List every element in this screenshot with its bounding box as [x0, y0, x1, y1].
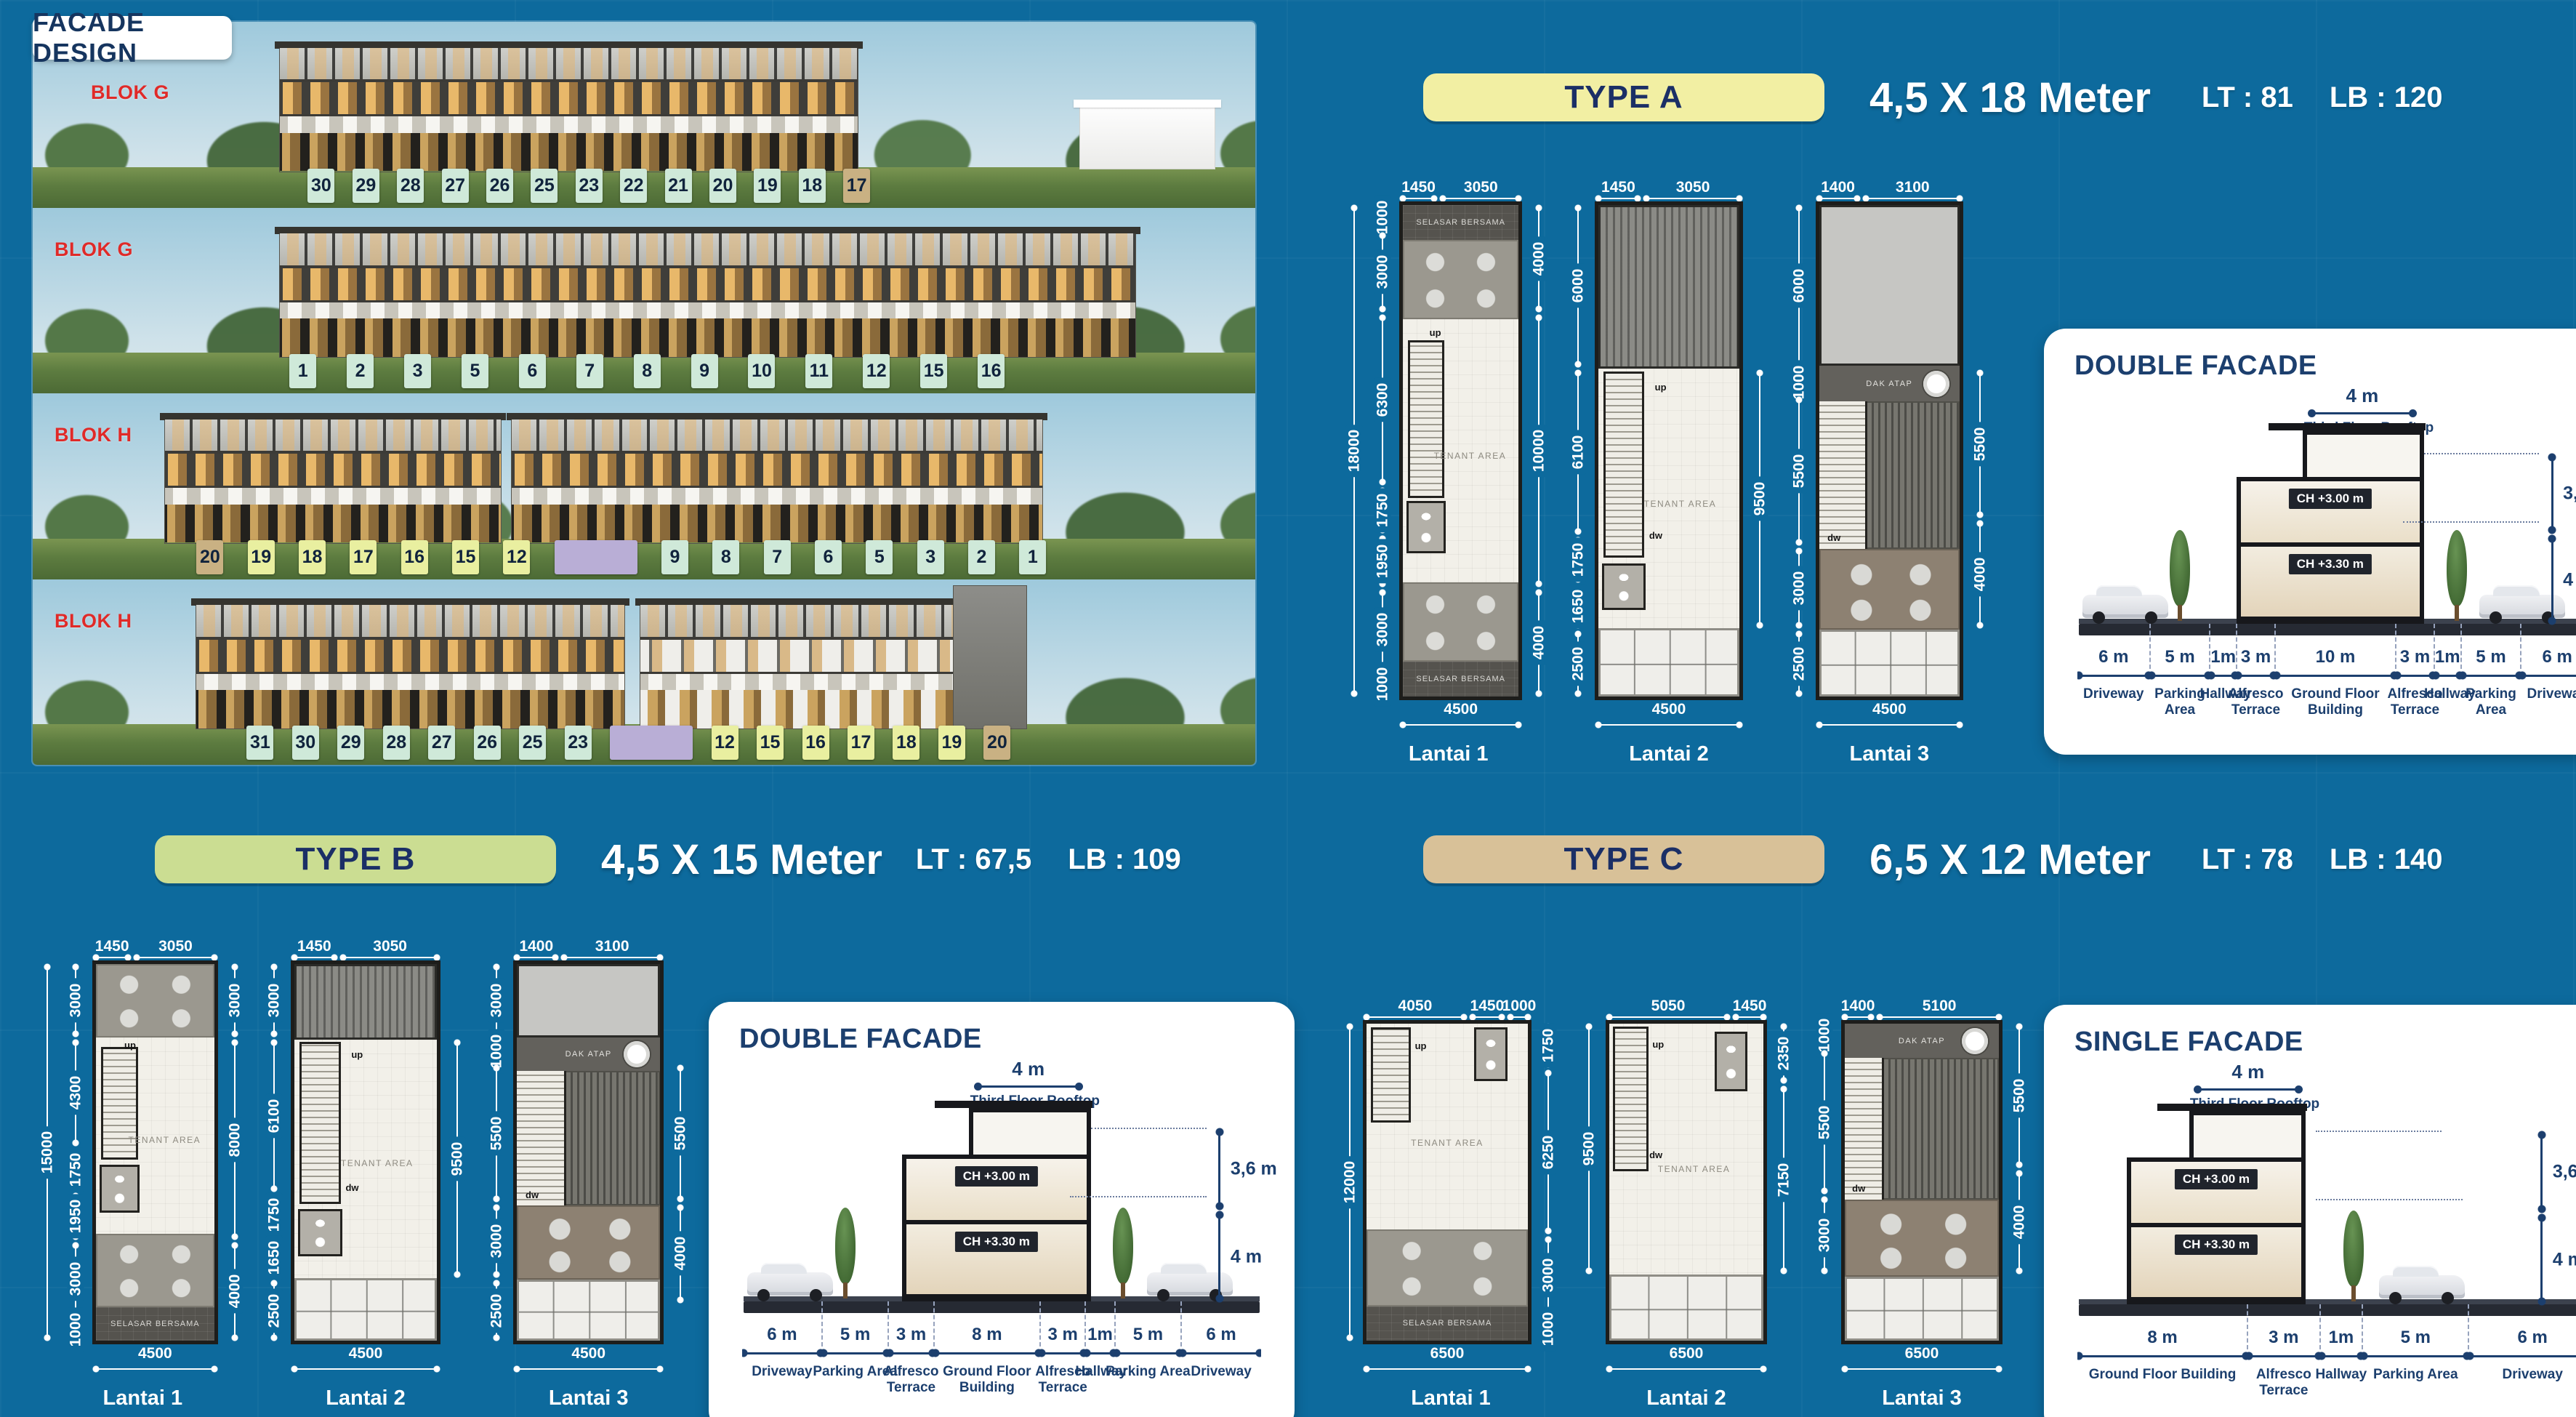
- dim-segment: 4000: [1964, 519, 1996, 629]
- up-label: up: [1652, 1039, 1664, 1050]
- floor3-facade: [196, 605, 624, 640]
- stairs: dw: [517, 1071, 564, 1206]
- stairs-roof-zone: dw: [1845, 1058, 1999, 1199]
- up-label: up: [1430, 327, 1441, 338]
- rooftop-terrace-zone: [517, 1205, 660, 1279]
- section-illustration: 4 m Third Floor Rooftop CH +3.00 m CH +3…: [2074, 383, 2576, 635]
- tenant-label: TENANT AREA: [129, 1135, 201, 1145]
- terrace-zone: [96, 1234, 214, 1307]
- unit-number-badge: 30: [307, 169, 334, 203]
- type-c-floorplans: 405014501000 12000 up TENANT AREA SELASA…: [1337, 997, 2035, 1410]
- canopy-zone: [1845, 1277, 1999, 1341]
- dim-segment: 4000: [1523, 588, 1555, 698]
- car-icon: [747, 1272, 833, 1296]
- scale-segment: 6 mDriveway: [1181, 1323, 1261, 1416]
- dak-atap-zone: DAK ATAP: [1819, 366, 1960, 401]
- dim-segment: 3000: [1532, 1235, 1564, 1315]
- unit-number-badge: 31: [246, 726, 273, 760]
- tenant-zone: up TENANT AREA: [96, 1037, 214, 1234]
- unit-number-badge: 15: [757, 726, 784, 760]
- up-label: up: [351, 1049, 363, 1060]
- unit-number-badge: 11: [805, 354, 832, 388]
- dim-segment: [1744, 630, 1776, 698]
- dim-segment: 9500: [441, 1038, 473, 1279]
- corner-tower: [954, 586, 1027, 728]
- dim-segment: 6250: [1532, 1069, 1564, 1235]
- canopy-zone: [1609, 1275, 1763, 1341]
- dim-left: 1000300063001750195030001000: [1367, 204, 1398, 698]
- roof-deck: [1865, 401, 1960, 549]
- double-facade-card-a: DOUBLE FACADE 4 m Third Floor Rooftop CH…: [2044, 329, 2576, 755]
- storefront-facade: [512, 505, 1042, 543]
- unit-number-badge: 27: [442, 169, 469, 203]
- dim-segment: 4050: [1362, 997, 1468, 1022]
- dim-right: 23507150: [1768, 1022, 1800, 1342]
- unit-number-badge: 29: [353, 169, 379, 203]
- plan-body: up dw TENANT AREA: [1609, 1024, 1763, 1341]
- unit-number-badge: 7: [764, 540, 791, 574]
- unit-number-badge: 19: [754, 169, 781, 203]
- width-scale: 6 mDriveway5 mParking Area3 mAlfresco Te…: [742, 1323, 1261, 1416]
- card-title: DOUBLE FACADE: [2074, 350, 2576, 382]
- dim-segment: 4000: [2003, 1169, 2035, 1276]
- unit-number-badge: 7: [576, 354, 603, 388]
- scale-segment: 5 mParking Area: [2362, 1326, 2468, 1417]
- dim-segment: 6000: [1562, 204, 1594, 369]
- storefront-facade: [280, 133, 858, 172]
- dim-overall: 15000: [35, 963, 60, 1342]
- plan-body: DAK ATAP dw: [1845, 1024, 1999, 1341]
- ceiling-height-upper: CH +3.00 m: [2175, 1169, 2258, 1189]
- signboard-band: [280, 302, 1135, 319]
- ground-floor: CH +3.30 m: [902, 1220, 1091, 1301]
- tenant-label: TENANT AREA: [1434, 451, 1507, 461]
- blok-label: BLOK G: [91, 81, 169, 104]
- storefront-facade: [280, 318, 1135, 357]
- tenant-label: TENANT AREA: [341, 1158, 414, 1168]
- roof-deck: [564, 1071, 660, 1206]
- dim-segment: 5050: [1605, 997, 1731, 1022]
- height-dimension: 3,6 m 4 m: [1215, 1128, 1225, 1303]
- leader-line: [2316, 1131, 2442, 1132]
- roof-zone: [517, 964, 660, 1037]
- unit-number-row: 313029282726252312151617181920: [246, 726, 1010, 760]
- dim-segment: 3050: [132, 938, 218, 963]
- dim-segment: 1400: [512, 938, 560, 963]
- dim-segment: 6000: [1783, 204, 1815, 369]
- dim-segment: 1000: [60, 1317, 92, 1342]
- tenant-zone: up dw TENANT AREA: [1609, 1024, 1763, 1275]
- leader-line: [2403, 521, 2539, 523]
- rooftop-floor: [969, 1108, 1091, 1155]
- dim-segment: 1000: [1532, 1315, 1564, 1342]
- dim-segment: 3000: [60, 1241, 92, 1317]
- tenant-zone: up dw TENANT AREA: [294, 1040, 438, 1278]
- dim-segment: 3000: [480, 1203, 512, 1279]
- ground-floor: CH +3.30 m: [2127, 1223, 2305, 1304]
- type-a-lt: LT : 81: [2202, 81, 2293, 114]
- dim-segment: 9500: [1573, 1022, 1605, 1275]
- tenant-label: TENANT AREA: [1658, 1164, 1731, 1174]
- unit-number-badge: 20: [709, 169, 736, 203]
- facade-row-blok-g-2: BLOK G 123567891011121516: [33, 208, 1255, 394]
- dim-segment: [441, 1279, 473, 1342]
- canopy-zone: [1819, 630, 1960, 697]
- dim-segment: 15000: [35, 963, 60, 1342]
- unit-number-badge: 8: [634, 354, 661, 388]
- signboard-band: [280, 116, 858, 133]
- second-floor: CH +3.00 m: [2127, 1157, 2305, 1223]
- tenant-zone: up TENANT AREA: [1403, 319, 1518, 582]
- terrace-zone: [96, 964, 214, 1037]
- car-icon: [2379, 1275, 2465, 1298]
- unit-number-badge: 30: [292, 726, 319, 760]
- plan-b-lantai3: 14003100 30001000550030002500 DAK ATAP d…: [480, 938, 696, 1410]
- plan-body: DAK ATAP dw: [517, 964, 660, 1341]
- unit-number-badge: 20: [983, 726, 1010, 760]
- dim-segment: 1000: [1367, 204, 1398, 231]
- plan-body: SELASAR BERSAMA up TENANT AREA SELASAR B…: [1403, 205, 1518, 697]
- exhaust-fan-icon: [1923, 371, 1949, 397]
- dim-segment: [664, 963, 696, 1064]
- dim-segment: 4300: [60, 1038, 92, 1147]
- ceiling-height-upper: CH +3.00 m: [2289, 489, 2372, 509]
- scale-segment: 6 mDriveway: [2521, 646, 2576, 739]
- section-illustration: 4 m Third Floor Rooftop CH +3.00 m CH +3…: [2074, 1059, 2576, 1316]
- dw-label: dw: [1852, 1183, 1865, 1194]
- unit-number-badge: 5: [462, 354, 488, 388]
- dim-overall: 18000: [1342, 204, 1367, 698]
- dim-segment: 1000: [1783, 369, 1815, 396]
- leader-line: [1070, 1196, 1207, 1197]
- scale-segment: 6 mDriveway: [2468, 1326, 2576, 1417]
- unit-number-badge: 18: [893, 726, 919, 760]
- plan-caption: Lantai 1: [1342, 733, 1555, 766]
- floor3-facade: [165, 420, 502, 454]
- dim-segment: 7150: [1768, 1085, 1800, 1275]
- dim-segment: 12000: [1337, 1022, 1362, 1342]
- ceiling-height-lower: CH +3.30 m: [2289, 554, 2372, 574]
- stairs: [1615, 1029, 1646, 1169]
- dw-label: dw: [345, 1182, 358, 1193]
- dim-segment: [441, 963, 473, 1038]
- dim-segment: 3050: [339, 938, 441, 963]
- rooftop-terrace-zone: [1845, 1200, 1999, 1277]
- dim-left: 100055003000: [1808, 1022, 1840, 1342]
- plan-a-lantai3: 14003100 60001000550030002500 DAK ATAP d…: [1783, 179, 1996, 766]
- ceiling-height-lower: CH +3.30 m: [2175, 1235, 2258, 1255]
- dim-segment: 5500: [2003, 1022, 2035, 1169]
- plan-body: up dw TENANT AREA: [1598, 205, 1739, 697]
- unit-number-badge: 17: [848, 726, 874, 760]
- dim-segment: 5500: [1783, 396, 1815, 547]
- ground-floor: CH +3.30 m: [2237, 542, 2424, 624]
- dim-segment: 8000: [219, 1038, 251, 1240]
- blok-label: BLOK H: [55, 424, 132, 446]
- shophouse-elevation-left: [165, 420, 502, 543]
- dim-segment: 3050: [1438, 179, 1523, 204]
- stairs: [1373, 1029, 1409, 1120]
- unit-number-badge: 28: [383, 726, 410, 760]
- dim-segment: 3000: [1783, 547, 1815, 629]
- dim-segment: 10000: [1523, 313, 1555, 588]
- plan-b-lantai1: 14503050 15000 300043001750195030001000 …: [35, 938, 251, 1410]
- dim-segment: 3050: [1642, 179, 1743, 204]
- plan-a-lantai2: 14503050 60006100175016502500 up dw TENA…: [1562, 179, 1775, 766]
- bathroom: [1604, 566, 1643, 607]
- tenant-label: TENANT AREA: [1644, 499, 1717, 509]
- type-b-header: TYPE B 4,5 X 15 Meter LT : 67,5 LB : 109: [155, 832, 1181, 887]
- dak-atap-zone: DAK ATAP: [517, 1037, 660, 1071]
- dim-segment: 2500: [258, 1279, 290, 1342]
- dim-segment: 1750: [1367, 486, 1398, 534]
- type-a-pill: TYPE A: [1423, 73, 1824, 121]
- up-label: up: [1655, 382, 1667, 393]
- dak-label: DAK ATAP: [1899, 1037, 1945, 1045]
- terrace-zone: [1403, 240, 1518, 319]
- type-b-ltlb: LT : 67,5 LB : 109: [916, 843, 1181, 876]
- stairs: [1410, 342, 1443, 495]
- dim-left: 300043001750195030001000: [60, 963, 92, 1342]
- plan-body: DAK ATAP dw: [1819, 205, 1960, 697]
- floor3-facade: [280, 233, 1135, 268]
- dw-label: dw: [1649, 1149, 1662, 1160]
- unit-number-badge: 25: [531, 169, 558, 203]
- dim-segment: 1950: [60, 1192, 92, 1241]
- dw-label: dw: [526, 1189, 539, 1200]
- plan-caption: Lantai 3: [1808, 1377, 2035, 1410]
- white-outbuilding: [1080, 108, 1215, 169]
- dim-segment: 2500: [1783, 630, 1815, 698]
- signboard-band: [512, 488, 1042, 505]
- plan-b-lantai2: 14503050 30006100175016502500 up dw TENA…: [258, 938, 474, 1410]
- dim-left: 60006100175016502500: [1562, 204, 1594, 698]
- exhaust-fan-icon: [1962, 1028, 1988, 1054]
- dim-segment: 5500: [1964, 369, 1996, 520]
- dim-segment: 9500: [1744, 369, 1776, 630]
- tenant-zone: up TENANT AREA: [1367, 1024, 1528, 1229]
- dak-atap-zone: DAK ATAP: [1845, 1024, 1999, 1058]
- type-c-ltlb: LT : 78 LB : 140: [2202, 843, 2443, 876]
- leader-line: [2424, 453, 2539, 454]
- floor3-facade: [512, 420, 1042, 454]
- dim-segment: 1450: [92, 938, 132, 963]
- type-b-size: 4,5 X 15 Meter: [601, 835, 882, 884]
- unit-number-badge: 9: [691, 354, 718, 388]
- dim-segment: 1650: [258, 1237, 290, 1279]
- unit-number-badge: 6: [815, 540, 842, 574]
- canopy-zone: [1598, 628, 1739, 697]
- dak-label: DAK ATAP: [565, 1050, 612, 1059]
- plan-caption: Lantai 2: [258, 1377, 474, 1410]
- dim-segment: 3100: [1861, 179, 1964, 204]
- unit-number-badge: 8: [712, 540, 739, 574]
- floor3-facade: [280, 48, 858, 83]
- dw-label: dw: [1649, 530, 1662, 541]
- plan-body: up dw TENANT AREA: [294, 964, 438, 1341]
- selasar-zone: SELASAR BERSAMA: [96, 1307, 214, 1341]
- dim-segment: 1400: [1815, 179, 1861, 204]
- type-b-pill: TYPE B: [155, 835, 556, 883]
- terrace-zone: [1403, 582, 1518, 662]
- shophouse-elevation-right: [512, 420, 1042, 543]
- ceiling-height-upper: CH +3.00 m: [955, 1166, 1038, 1187]
- double-facade-card-b: DOUBLE FACADE 4 m Third Floor Rooftop CH…: [709, 1002, 1295, 1417]
- plan-a-lantai1: 14503050 18000 1000300063001750195030001…: [1342, 179, 1555, 766]
- height-dimension: 3,6 m 4 m: [2537, 1131, 2547, 1306]
- leader-line: [1091, 1128, 1207, 1129]
- signboard-band: [196, 674, 624, 691]
- unit-number-badge: 17: [350, 540, 377, 574]
- dim-segment: 3000: [1367, 588, 1398, 670]
- type-c-header: TYPE C 6,5 X 12 Meter LT : 78 LB : 140: [1423, 832, 2442, 887]
- plan-c-lantai1: 405014501000 12000 up TENANT AREA SELASA…: [1337, 997, 1564, 1410]
- plan-caption: Lantai 2: [1573, 1377, 1800, 1410]
- ground-slab: [2079, 1304, 2576, 1316]
- card-title: SINGLE FACADE: [2074, 1027, 2576, 1058]
- selasar-zone: SELASAR BERSAMA: [1403, 205, 1518, 240]
- type-a-header: TYPE A 4,5 X 18 Meter LT : 81 LB : 120: [1423, 70, 2442, 125]
- dim-segment: 3100: [560, 938, 664, 963]
- plan-caption: Lantai 3: [1783, 733, 1996, 766]
- unit-number-badge: 18: [799, 169, 826, 203]
- unit-number-badge: 9: [661, 540, 688, 574]
- bathroom: [1717, 1034, 1744, 1089]
- unit-number-badge: 1: [1019, 540, 1046, 574]
- dim-segment: 4000: [664, 1203, 696, 1304]
- unit-number-badge: 3: [404, 354, 431, 388]
- dim-segment: [1964, 204, 1996, 369]
- dim-segment: 1000: [1367, 670, 1398, 698]
- dim-segment: 2350: [1768, 1022, 1800, 1085]
- plan-c-lantai3: 14005100 100055003000 DAK ATAP dw 550040…: [1808, 997, 2035, 1410]
- floor2-facade: [640, 640, 954, 674]
- dim-segment: 3000: [219, 963, 251, 1038]
- dim-segment: [1744, 204, 1776, 369]
- unit-number-badge: 3: [917, 540, 944, 574]
- dim-segment: 1950: [1367, 534, 1398, 588]
- reserved-unit-badge: [610, 726, 693, 760]
- unit-number-badge: 16: [401, 540, 428, 574]
- type-a-lb: LB : 120: [2330, 81, 2443, 114]
- leader-line: [2316, 1199, 2463, 1200]
- width-scale: 6 mDriveway5 mParking Area1mHallway3 mAl…: [2077, 646, 2576, 739]
- tenant-zone: up dw TENANT AREA: [1598, 369, 1739, 628]
- reserved-unit-badge: [555, 540, 637, 574]
- storefront-facade: [165, 505, 502, 543]
- dim-segment: [1768, 1275, 1800, 1342]
- dim-segment: 6100: [1562, 369, 1594, 536]
- tree-icon: [829, 1208, 862, 1298]
- unit-number-badge: 15: [920, 354, 947, 388]
- unit-number-badge: 10: [748, 354, 775, 388]
- dim-segment: 1750: [258, 1193, 290, 1237]
- dim-right: 9500: [441, 963, 473, 1342]
- dw-label: dw: [1827, 532, 1840, 543]
- selasar-label: SELASAR BERSAMA: [1416, 218, 1505, 227]
- unit-number-badge: 19: [938, 726, 965, 760]
- dim-segment: 4000: [1523, 204, 1555, 313]
- dim-segment: 1400: [1840, 997, 1875, 1022]
- unit-number-badge: 16: [978, 354, 1005, 388]
- stairs: dw: [1819, 401, 1866, 549]
- facade-row-blok-h-1: BLOK H 2019181716151298765321: [33, 393, 1255, 579]
- single-facade-card-c: SINGLE FACADE 4 m Third Floor Rooftop CH…: [2044, 1005, 2576, 1417]
- type-a-size: 4,5 X 18 Meter: [1869, 73, 2151, 122]
- dim-segment: 1450: [1398, 179, 1438, 204]
- unit-number-badge: 28: [397, 169, 424, 203]
- dim-segment: 3000: [1808, 1195, 1840, 1275]
- scale-segment: 10 mGround Floor Building: [2275, 646, 2396, 739]
- floor3-facade: [640, 605, 954, 640]
- selasar-zone: SELASAR BERSAMA: [1403, 662, 1518, 697]
- dim-segment: [1808, 1275, 1840, 1342]
- dim-segment: 6300: [1367, 313, 1398, 486]
- signboard-band: [165, 488, 502, 505]
- canopy-zone: [294, 1278, 438, 1341]
- selasar-zone: SELASAR BERSAMA: [1367, 1306, 1528, 1341]
- dim-segment: 3000: [1367, 231, 1398, 313]
- dim-segment: [664, 1304, 696, 1342]
- unit-number-badge: 5: [866, 540, 893, 574]
- unit-number-badge: 21: [665, 169, 692, 203]
- unit-number-row: 2019181716151298765321: [196, 540, 1046, 574]
- car-icon: [2082, 595, 2168, 618]
- unit-number-badge: 25: [519, 726, 546, 760]
- shophouse-elevation-right: [640, 605, 954, 728]
- roof-zone: [1819, 205, 1960, 366]
- tree-icon: [2163, 530, 2197, 621]
- unit-number-badge: 29: [337, 726, 364, 760]
- facade-row-blok-h-2: BLOK H 313029282726252312151617181920: [33, 579, 1255, 766]
- blok-label: BLOK H: [55, 610, 132, 633]
- unit-number-row: 123567891011121516: [289, 354, 1005, 388]
- plan-c-lantai2: 50501450 9500 up dw TENANT AREA 23507150…: [1573, 997, 1800, 1410]
- bathroom: [102, 1167, 137, 1210]
- stairs: [1606, 374, 1642, 555]
- page-title: FACADE DESIGN: [33, 16, 232, 60]
- rooftop-terrace-zone: [1819, 549, 1960, 630]
- tree-icon: [2440, 530, 2474, 621]
- building-section: CH +3.00 m CH +3.30 m: [2237, 430, 2424, 624]
- up-label: up: [1415, 1040, 1427, 1051]
- dim-segment: 3000: [60, 963, 92, 1038]
- floor2-facade: [280, 268, 1135, 302]
- unit-number-badge: 23: [576, 169, 603, 203]
- dim-segment: 5100: [1875, 997, 2003, 1022]
- unit-number-badge: 27: [428, 726, 455, 760]
- signboard-band: [640, 674, 954, 691]
- dim-segment: 1000: [1808, 1022, 1840, 1049]
- scale-segment: 8 mGround Floor Building: [2077, 1326, 2247, 1417]
- unit-number-badge: 12: [503, 540, 530, 574]
- dim-right: 55004000: [1964, 204, 1996, 698]
- bathroom: [1409, 503, 1444, 550]
- type-b-floorplans: 14503050 15000 300043001750195030001000 …: [35, 938, 696, 1410]
- dim-segment: 18000: [1342, 204, 1367, 698]
- bathroom: [1476, 1029, 1505, 1079]
- shophouse-elevation: [280, 233, 1135, 357]
- stairs: dw: [1845, 1058, 1882, 1199]
- canopy-zone: [517, 1280, 660, 1341]
- dim-segment: 3000: [480, 963, 512, 1038]
- unit-number-badge: 6: [519, 354, 546, 388]
- unit-number-badge: 26: [486, 169, 513, 203]
- dim-segment: 2500: [480, 1279, 512, 1342]
- plan-caption: Lantai 1: [1337, 1377, 1564, 1410]
- building-section: CH +3.00 m CH +3.30 m: [902, 1108, 1091, 1301]
- width-scale: 8 mGround Floor Building3 mAlfresco Terr…: [2077, 1326, 2576, 1417]
